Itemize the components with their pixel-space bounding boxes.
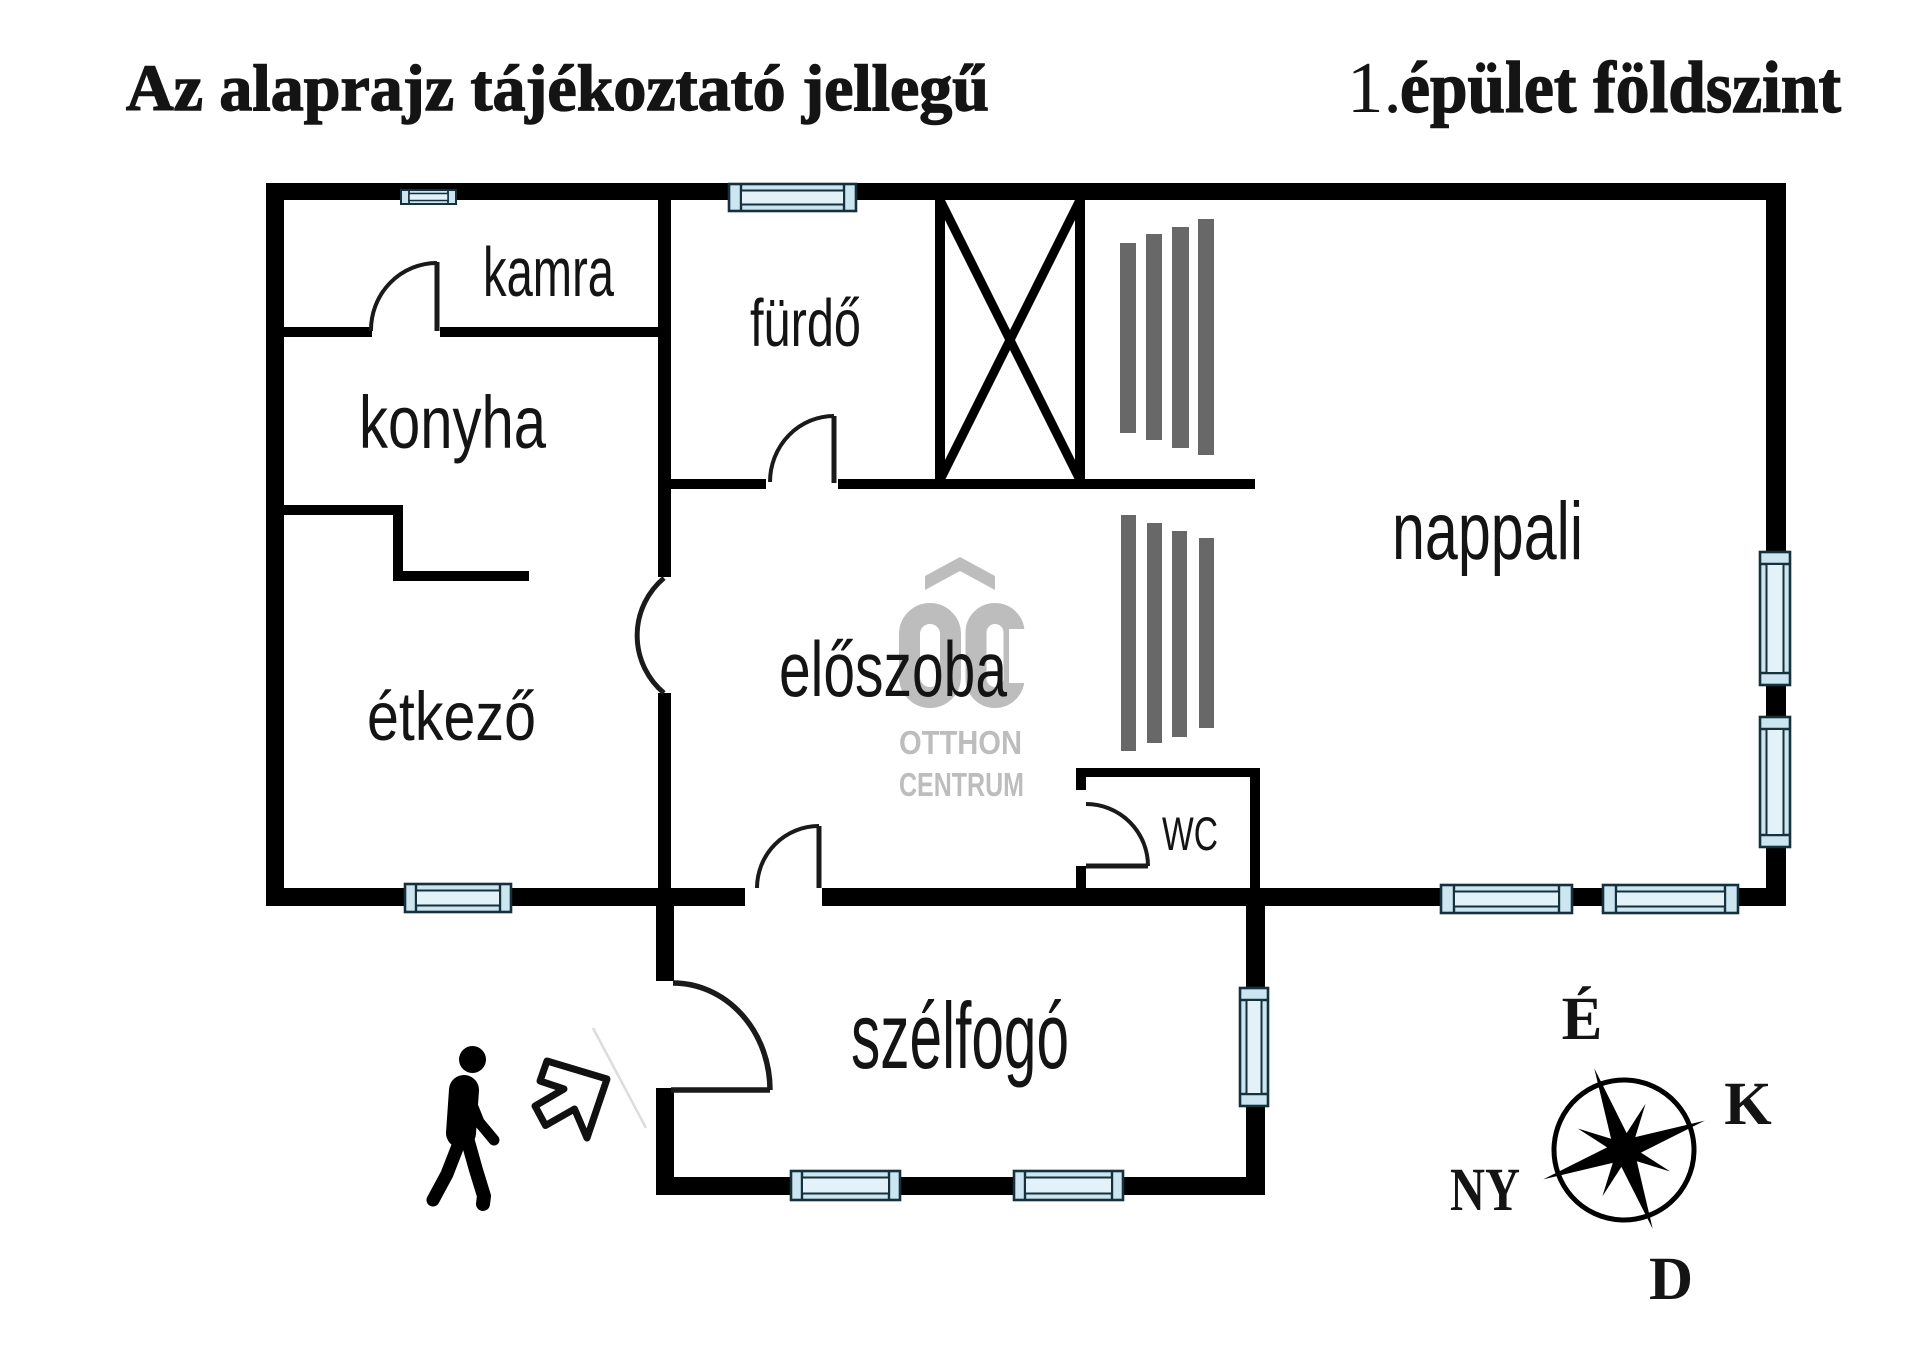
- svg-text:fürdő: fürdő: [750, 286, 861, 361]
- svg-text:CENTRUM: CENTRUM: [899, 766, 1024, 803]
- svg-text:szélfogó: szélfogó: [851, 983, 1069, 1088]
- svg-text:NY: NY: [1450, 1157, 1520, 1224]
- svg-text:nappali: nappali: [1392, 486, 1583, 577]
- svg-text:1.: 1.: [1347, 47, 1402, 128]
- svg-text:étkező: étkező: [367, 678, 536, 755]
- svg-text:konyha: konyha: [359, 381, 547, 464]
- svg-text:Az alaprajz tájékoztató jelleg: Az alaprajz tájékoztató jellegű: [126, 52, 989, 125]
- svg-text:kamra: kamra: [483, 233, 614, 311]
- svg-text:OTTHON: OTTHON: [899, 724, 1022, 761]
- svg-text:É: É: [1562, 986, 1603, 1053]
- svg-text:K: K: [1724, 1071, 1771, 1138]
- svg-text:épület földszint: épület földszint: [1400, 47, 1841, 128]
- svg-text:D: D: [1649, 1246, 1693, 1313]
- svg-text:WC: WC: [1162, 807, 1218, 860]
- svg-text:előszoba: előszoba: [779, 625, 1007, 713]
